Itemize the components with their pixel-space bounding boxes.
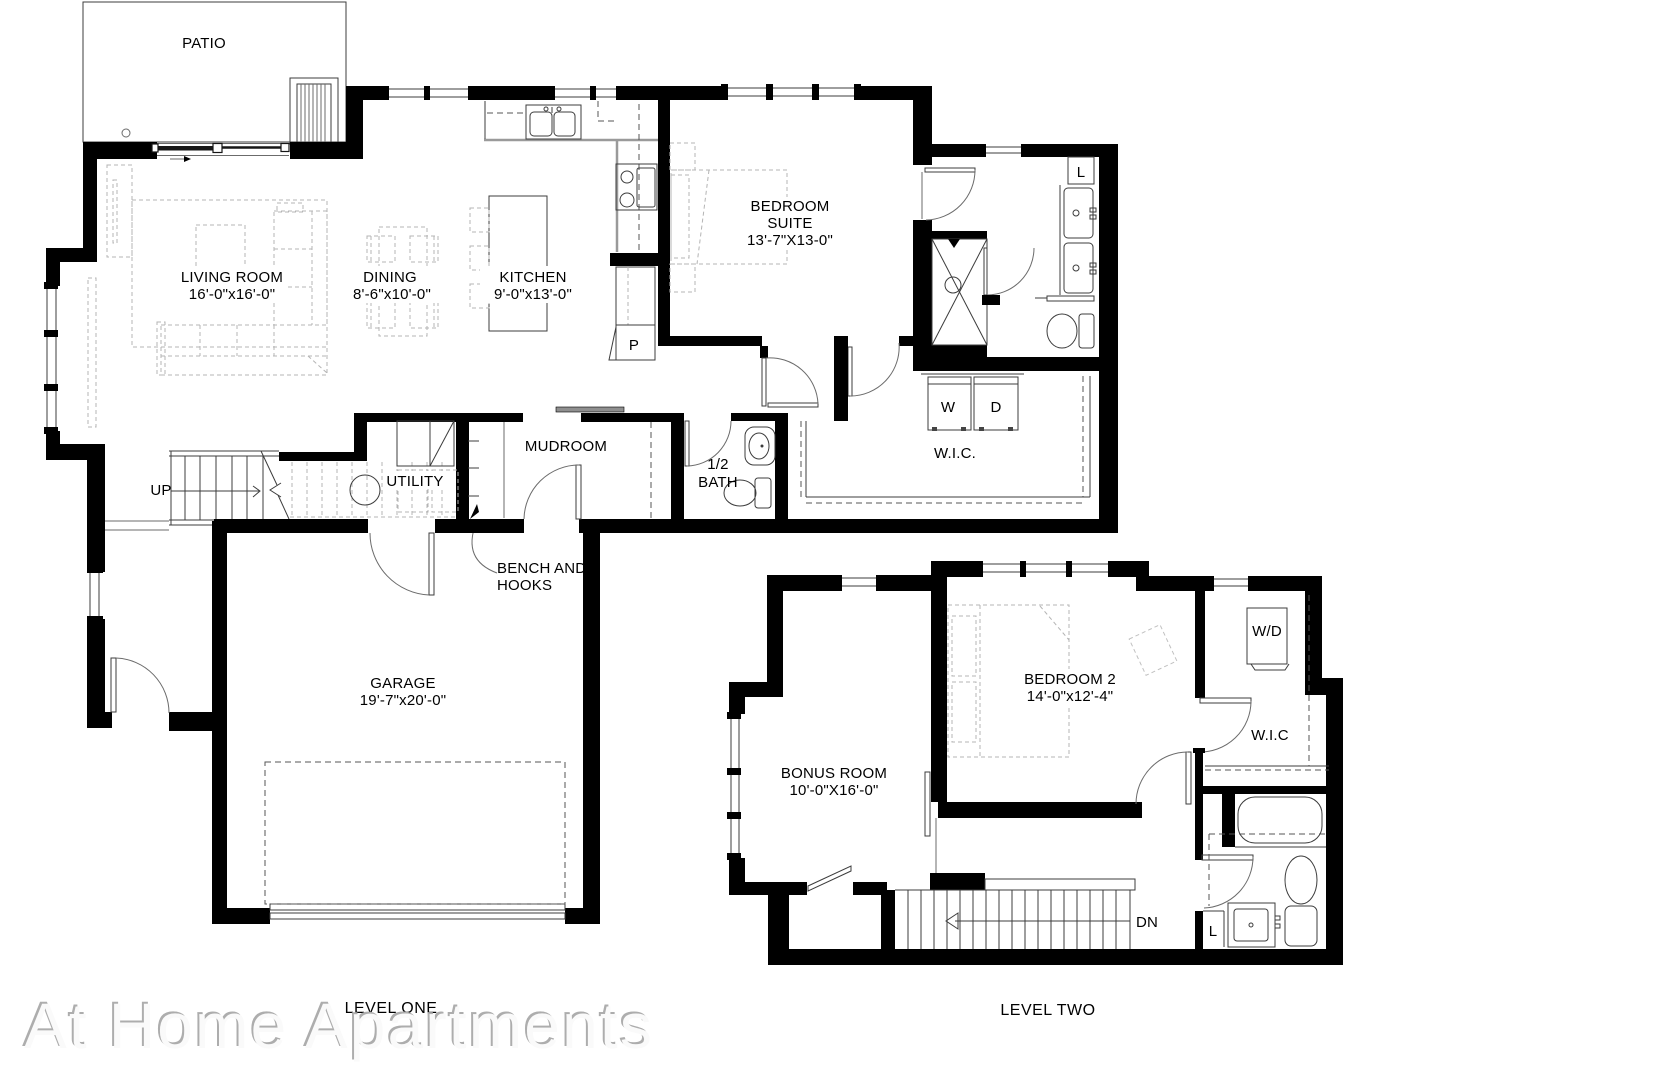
svg-text:MUDROOM: MUDROOM [525, 438, 607, 455]
svg-text:14'-0"x12'-4": 14'-0"x12'-4" [1027, 688, 1114, 705]
svg-text:19'-7"x20'-0": 19'-7"x20'-0" [360, 692, 447, 709]
svg-text:L: L [1209, 923, 1218, 940]
svg-text:9'-0"x13'-0": 9'-0"x13'-0" [494, 286, 572, 303]
svg-text:13'-7"X13-0": 13'-7"X13-0" [747, 232, 833, 249]
svg-text:1/2: 1/2 [707, 456, 728, 473]
svg-text:PATIO: PATIO [182, 35, 226, 52]
svg-text:W: W [941, 399, 956, 416]
svg-text:BONUS ROOM: BONUS ROOM [781, 765, 887, 782]
svg-text:L: L [1077, 164, 1086, 181]
svg-text:DN: DN [1136, 914, 1158, 931]
svg-text:HOOKS: HOOKS [497, 577, 552, 594]
svg-text:BENCH AND: BENCH AND [497, 560, 586, 577]
svg-text:LEVEL TWO: LEVEL TWO [1000, 1002, 1095, 1019]
svg-text:P: P [629, 337, 639, 354]
svg-text:SUITE: SUITE [767, 215, 812, 232]
svg-text:BEDROOM 2: BEDROOM 2 [1024, 671, 1116, 688]
svg-text:KITCHEN: KITCHEN [499, 269, 566, 286]
svg-text:BEDROOM: BEDROOM [751, 198, 830, 215]
svg-text:10'-0"X16'-0": 10'-0"X16'-0" [789, 782, 878, 799]
svg-text:BATH: BATH [698, 474, 738, 491]
svg-text:16'-0"x16'-0": 16'-0"x16'-0" [189, 286, 276, 303]
svg-text:W.I.C.: W.I.C. [934, 445, 976, 462]
svg-text:At Home Apartments: At Home Apartments [24, 990, 654, 1062]
svg-text:UP: UP [150, 482, 171, 499]
svg-text:W.I.C: W.I.C [1251, 727, 1289, 744]
svg-text:W/D: W/D [1252, 623, 1282, 640]
svg-text:DINING: DINING [363, 269, 417, 286]
svg-text:D: D [990, 399, 1001, 416]
svg-text:8'-6"x10'-0": 8'-6"x10'-0" [353, 286, 431, 303]
svg-text:UTILITY: UTILITY [386, 473, 443, 490]
svg-text:GARAGE: GARAGE [370, 675, 435, 692]
svg-text:LIVING ROOM: LIVING ROOM [181, 269, 283, 286]
